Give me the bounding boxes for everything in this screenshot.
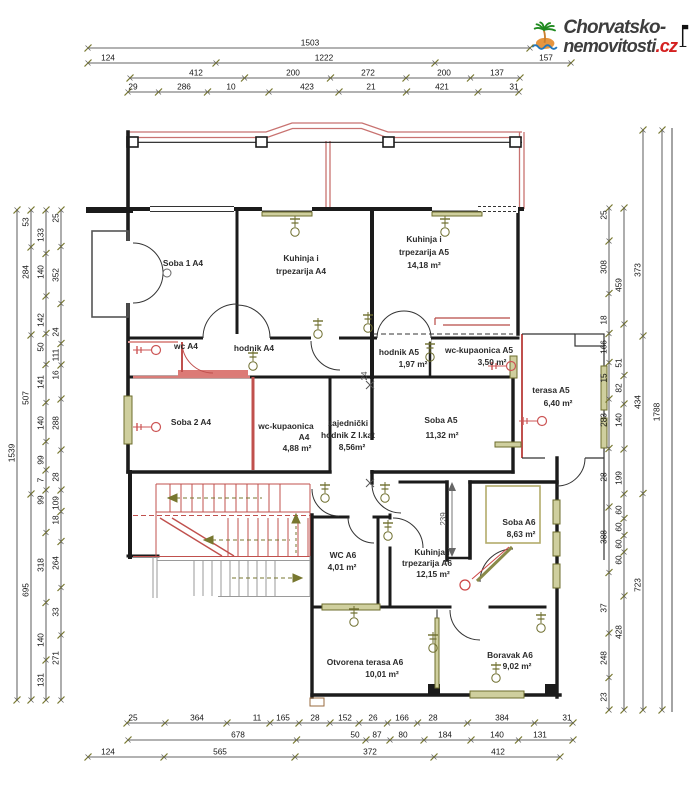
dim-row-2: 412200272200137 — [127, 68, 524, 82]
fixture-circle — [381, 494, 389, 502]
fixture-circle — [321, 494, 329, 502]
room-wc-kup-a5: wc-kupaonica A53,50 m² — [444, 345, 513, 367]
dim-label: 31 — [562, 713, 572, 723]
walls — [89, 132, 560, 697]
dim-label: 308 — [599, 260, 609, 274]
dim-label: 60 — [614, 539, 624, 549]
dim-label: 99 — [36, 455, 46, 465]
dim-label: 140 — [614, 413, 624, 427]
fixture-circle — [537, 624, 545, 632]
dim-label: 459 — [614, 278, 624, 292]
dim-label: 200 — [437, 68, 451, 78]
room-soba1-a4: Soba 1 A4 — [163, 258, 204, 268]
room-label: Kuhinja i — [406, 234, 441, 244]
room-label: 8,56m² — [339, 442, 366, 452]
dim-label: 428 — [614, 625, 624, 639]
fixture-circle — [291, 228, 299, 236]
dim-label: 141 — [36, 375, 46, 389]
fixture-circle — [492, 674, 500, 682]
dim-row-4: 253641116528152261662838431 — [124, 713, 577, 727]
stairs — [133, 484, 310, 598]
dim-label: 21 — [366, 82, 376, 92]
dim-label: 33 — [51, 607, 61, 617]
plumbing-fixture-icon — [383, 520, 393, 540]
fixture-circle — [441, 228, 449, 236]
dim-label: 16 — [51, 370, 61, 380]
room-label: zajednički — [328, 418, 368, 428]
dim-label: 272 — [361, 68, 375, 78]
dim-row-1: 1241222157 — [85, 53, 575, 67]
windows — [124, 212, 607, 698]
dim-label: 364 — [190, 713, 204, 723]
dim-label: 37 — [599, 603, 609, 613]
electrical-fixture-icon — [519, 417, 547, 426]
dim-label: 200 — [286, 68, 300, 78]
dim-label: 18 — [51, 515, 61, 525]
dim-label: 1539 — [7, 443, 17, 462]
room-label: 9,02 m² — [503, 661, 532, 671]
dim-row-13: 373434723 — [633, 127, 647, 714]
dim-label: 423 — [300, 82, 314, 92]
plumbing-fixture-icon — [349, 606, 359, 626]
dim-row-7: 1539 — [7, 207, 21, 704]
soba-a6-door-leaf — [460, 547, 512, 590]
dim-label: 1788 — [652, 402, 662, 421]
room-soba-a5: Soba A511,32 m² — [424, 415, 458, 440]
dim-label: 131 — [36, 673, 46, 687]
electrical-fixture-icon — [133, 423, 161, 432]
room-boravak-a6: Boravak A69,02 m² — [487, 650, 533, 671]
fixture-circle — [538, 417, 547, 426]
dim-label: 271 — [51, 651, 61, 665]
room-soba2-a4: Soba 2 A4 — [171, 417, 212, 427]
room-hodnik-a4: hodnik A4 — [234, 343, 275, 353]
dim-label: 412 — [189, 68, 203, 78]
dim-row-3: 29286104232142131 — [125, 82, 523, 96]
dim-label: 10 — [226, 82, 236, 92]
room-wc-a6: WC A64,01 m² — [328, 550, 357, 572]
dim-label: 25 — [51, 213, 61, 223]
terrace-step — [310, 698, 324, 706]
dim-label: 165 — [276, 713, 290, 723]
room-label: Soba 1 A4 — [163, 258, 204, 268]
dim-label: 565 — [213, 747, 227, 757]
dim-label: 25 — [128, 713, 138, 723]
dim-label: 372 — [363, 747, 377, 757]
room-label: 4,01 m² — [328, 562, 357, 572]
dim-label: 352 — [51, 268, 61, 282]
dim-label: 142 — [36, 313, 46, 327]
fixture-circle — [249, 362, 257, 370]
dim-label: 51 — [614, 358, 624, 368]
plumbing-fixture-icon — [536, 612, 546, 632]
dim-label: 140 — [36, 633, 46, 647]
dim-label: 124 — [101, 747, 115, 757]
room-label: 14,18 m² — [407, 260, 441, 270]
dim-row-9: 1331401425014114099799318140131 — [36, 207, 50, 704]
dim-label: 28 — [51, 472, 61, 482]
dim-label: 31 — [509, 82, 519, 92]
room-label: 4,88 m² — [283, 443, 312, 453]
dim-row-0: 1503 — [85, 38, 534, 52]
dim-row-5: 678508780184140131 — [125, 730, 577, 744]
dim-label: 384 — [495, 713, 509, 723]
dim-row-14: 1788 — [652, 127, 666, 714]
inline-dim-label: 24 — [360, 371, 369, 380]
dim-label: 29 — [128, 82, 138, 92]
room-label: trpezarija A5 — [399, 247, 449, 257]
electrical-fixture-icon — [133, 346, 161, 355]
fixture-circle — [152, 423, 161, 432]
dim-label: 60 — [614, 522, 624, 532]
dim-label: 137 — [490, 68, 504, 78]
dim-row-6: 124565372412 — [85, 747, 564, 761]
room-label: 10,01 m² — [365, 669, 399, 679]
room-kuhinja-a6: Kuhinja itrpezarija A612,15 m² — [402, 547, 452, 579]
room-label: terasa A5 — [532, 385, 570, 395]
dim-label: 695 — [21, 583, 31, 597]
room-label: 3,50 m² — [478, 357, 507, 367]
dim-label: 166 — [599, 340, 609, 354]
dim-label: 131 — [533, 730, 547, 740]
dim-label: 1503 — [301, 38, 320, 48]
dim-label: 60 — [614, 555, 624, 565]
room-label: hodnik A5 — [379, 347, 420, 357]
room-labels: Soba 1 A4Kuhinja itrpezarija A4Kuhinja i… — [163, 234, 573, 679]
dim-label: 24 — [51, 327, 61, 337]
room-label: A4 — [299, 432, 310, 442]
dim-label: 318 — [36, 558, 46, 572]
plumbing-fixture-icon — [248, 350, 258, 370]
dim-label: 264 — [51, 556, 61, 570]
dim-label: 109 — [51, 496, 61, 510]
dim-label: 53 — [21, 217, 31, 227]
dim-label: 28 — [428, 713, 438, 723]
dim-label: 184 — [438, 730, 452, 740]
room-label: 12,15 m² — [416, 569, 450, 579]
dim-label: 1222 — [315, 53, 334, 63]
dim-label: 23 — [599, 692, 609, 702]
dim-label: 80 — [398, 730, 408, 740]
room-label: hodnik Z I.kat — [321, 430, 375, 440]
dim-label: 412 — [491, 747, 505, 757]
room-label: WC A6 — [330, 550, 357, 560]
room-label: Soba A5 — [424, 415, 458, 425]
plumbing-fixture-icon — [290, 216, 300, 236]
plumbing-fixture-icon — [380, 482, 390, 502]
dim-label: 373 — [633, 263, 643, 277]
room-label: 8,63 m² — [507, 529, 536, 539]
dim-label: 152 — [338, 713, 352, 723]
dim-label: 421 — [435, 82, 449, 92]
room-hodnik-a5: hodnik A51,97 m² — [379, 347, 428, 369]
dim-label: 140 — [490, 730, 504, 740]
dim-label: 678 — [231, 730, 245, 740]
dim-label: 434 — [633, 395, 643, 409]
dim-label: 26 — [368, 713, 378, 723]
room-wc-a4: wc A4 — [173, 341, 198, 351]
dim-label: 28 — [310, 713, 320, 723]
dim-label: 18 — [599, 315, 609, 325]
dim-label: 15 — [599, 373, 609, 383]
room-soba-a6: Soba A68,63 m² — [502, 517, 536, 539]
dim-label: 133 — [36, 228, 46, 242]
room-label: 1,97 m² — [399, 359, 428, 369]
dim-row-12: 459518214019960606060428 — [614, 205, 628, 714]
room-label: 11,32 m² — [425, 430, 458, 440]
room-kuhinja-a4: Kuhinja itrpezarija A4 — [276, 253, 326, 276]
dim-label: 140 — [36, 265, 46, 279]
room-kuhinja-a5: Kuhinja itrpezarija A514,18 m² — [399, 234, 449, 270]
dim-label: 248 — [599, 651, 609, 665]
dim-label: 288 — [51, 416, 61, 430]
dim-label: 283 — [599, 413, 609, 427]
room-label: Kuhinja i — [414, 547, 449, 557]
dim-label: 723 — [633, 578, 643, 592]
floor-plan-page: Chorvatsko- nemovitosti.cz — [0, 0, 689, 798]
dim-label: 99 — [36, 495, 46, 505]
terrace-roof-outline — [128, 123, 524, 209]
plumbing-fixture-icon — [491, 662, 501, 682]
floor-plan-svg: 1503124122215741220027220013729286104232… — [0, 0, 689, 798]
room-otvorena-terasa-a6: Otvorena terasa A610,01 m² — [327, 657, 404, 679]
dim-label: 284 — [21, 265, 31, 279]
dim-label: 50 — [36, 342, 46, 352]
room-label: Boravak A6 — [487, 650, 533, 660]
dim-label: 28 — [599, 472, 609, 482]
dim-label: 50 — [350, 730, 360, 740]
dim-label: 140 — [36, 416, 46, 430]
dim-label: 286 — [177, 82, 191, 92]
room-terasa-a5: terasa A56,40 m² — [532, 385, 572, 408]
dim-label: 87 — [372, 730, 382, 740]
left-balcony — [92, 231, 128, 317]
dim-label: 166 — [395, 713, 409, 723]
room-wc-kup-a4: wc-kupaonicaA44,88 m² — [257, 421, 314, 453]
fixture-circle — [152, 346, 161, 355]
dim-label: 7 — [36, 477, 46, 482]
dim-label: 388 — [599, 530, 609, 544]
room-label: trpezarija A4 — [276, 266, 326, 276]
plumbing-fixture-icon — [320, 482, 330, 502]
room-label: Soba 2 A4 — [171, 417, 212, 427]
room-label: wc A4 — [173, 341, 198, 351]
room-label: Soba A6 — [502, 517, 536, 527]
fixture-circle — [350, 618, 358, 626]
room-label: Otvorena terasa A6 — [327, 657, 404, 667]
dim-label: 11 — [253, 713, 262, 723]
room-label: wc-kupaonica — [257, 421, 314, 431]
dim-label: 124 — [101, 53, 115, 63]
dim-row-10: 253522411116288281091826433271 — [51, 207, 65, 704]
dim-label: 25 — [599, 210, 609, 220]
room-label: hodnik A4 — [234, 343, 275, 353]
room-label: wc-kupaonica A5 — [444, 345, 513, 355]
dim-label: 157 — [539, 53, 553, 63]
room-label: 6,40 m² — [544, 398, 573, 408]
inline-dim-label: 239 — [439, 512, 448, 526]
fixture-circle — [384, 532, 392, 540]
dim-label: 199 — [614, 471, 624, 485]
dim-row-11: 253081816615283283883724823 — [599, 205, 613, 714]
dim-label: 60 — [614, 505, 624, 515]
dim-label: 111 — [51, 348, 61, 361]
dim-label: 507 — [21, 391, 31, 405]
dim-row-8: 53284507695 — [21, 207, 35, 704]
room-label: trpezarija A6 — [402, 558, 452, 568]
dim-label: 82 — [614, 383, 624, 393]
room-label: Kuhinja i — [283, 253, 318, 263]
